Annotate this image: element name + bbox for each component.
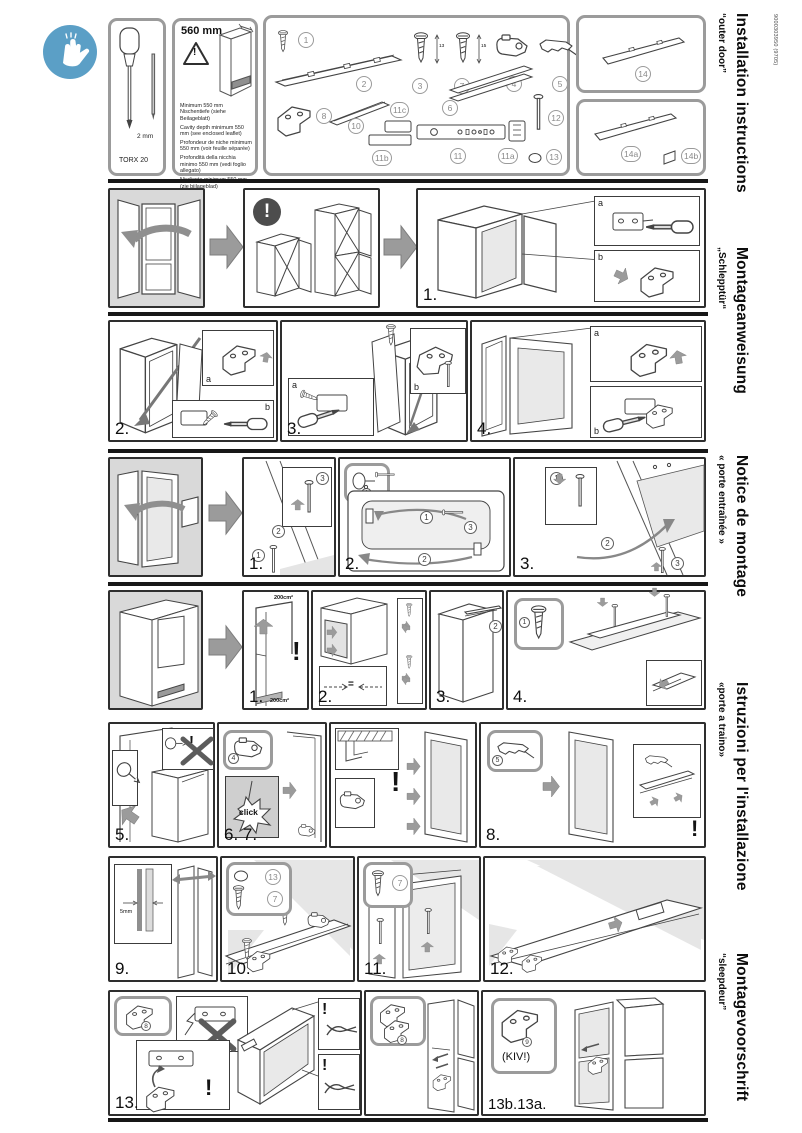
torx-screwdriver-icon — [115, 26, 161, 134]
installation-instruction-sheet: 2 mm TORX 20 560 mm ! Minimum 550 mm Nis… — [0, 0, 802, 1133]
part-14-panel: 14 — [576, 15, 706, 93]
hatch-art — [338, 731, 394, 765]
step-13b-13a-panel: 9 (KIV!) 13b.13a. — [481, 990, 706, 1116]
circled-8: 8 — [397, 1035, 407, 1045]
pliers-icon — [325, 1021, 359, 1043]
sidebar-section-it: Istruzioni per l'installazione «porte a … — [716, 682, 750, 932]
step-3-inset-b: b — [410, 328, 466, 394]
part-pin-12 — [534, 94, 546, 136]
cabinet-corner-art — [281, 728, 325, 846]
section-title-fr: Notice de montage — [732, 455, 750, 665]
step-1-panel: a b 1. — [416, 188, 706, 308]
hinge-icon — [338, 791, 372, 817]
inset-label-a: a — [594, 328, 599, 338]
under-door-art — [232, 1000, 318, 1110]
sidebar-section-de: Montageanweisung „Schlepptür“ — [716, 247, 750, 447]
bracket-turn-art — [141, 1045, 225, 1105]
part-callout-2: 2 — [356, 76, 372, 92]
step-number: 4. — [477, 419, 491, 439]
cap-screw-ref-inset: 13 7 — [226, 862, 292, 916]
cap-icon — [233, 869, 253, 883]
door-swap-art — [112, 463, 202, 575]
part-callout-14b: 14b — [681, 148, 701, 164]
step-4-inset-a: a — [590, 326, 702, 382]
hinge-inset — [335, 778, 375, 828]
part-callout-12: 12 — [548, 110, 564, 126]
door-swap-art — [112, 192, 204, 306]
door-swap-overview-panel — [108, 188, 205, 308]
pliers-inset-top: ! — [318, 998, 360, 1050]
gloves-icon — [40, 22, 100, 82]
slide-step-12-panel: 12. — [483, 856, 706, 982]
step-number: 9. — [115, 959, 129, 979]
gap-step-9-panel: 5mm 9. — [108, 856, 218, 982]
gap-label: 5mm — [120, 909, 132, 915]
warning-triangle-icon — [183, 41, 211, 67]
callout-13: 13 — [265, 869, 281, 885]
part-square-14b — [661, 150, 679, 166]
part-14a-14b-panel: 14a 14b — [576, 99, 706, 176]
part-callout-14a: 14a — [621, 146, 641, 162]
bracket-overview-panel: 8 — [364, 990, 479, 1116]
step-2-inset-a: a — [202, 330, 274, 386]
part-callout-6: 6 — [442, 100, 458, 116]
gap-inset: 5mm — [114, 864, 172, 944]
rail-fix-step-4-panel: 1 4. — [506, 590, 706, 710]
section-title-nl: Montagevoorschrift — [732, 953, 750, 1118]
circled-1: 1 — [420, 511, 433, 524]
doc-number: 9000303950 (9705) — [772, 14, 778, 65]
rail-clip-art — [638, 751, 696, 811]
part-11c-block — [384, 120, 414, 134]
gray-arrow-icon — [384, 226, 418, 269]
step-number: 13b.13a. — [488, 1096, 546, 1113]
step-4-inset-b: b — [590, 386, 702, 438]
part-cap-13 — [528, 152, 544, 164]
bracket-arrow-art — [609, 335, 697, 377]
divider — [108, 1118, 708, 1122]
step-number: 11. — [364, 959, 386, 979]
cabinet-panel-art — [317, 594, 397, 666]
double-door-fridge-art — [569, 996, 701, 1114]
step-number: 3. — [520, 554, 534, 574]
callout-7: 7 — [267, 891, 283, 907]
part-callout-3: 3 — [412, 78, 428, 94]
screws-step-10-panel: 13 7 10. — [220, 856, 355, 982]
step-number: 1. — [249, 687, 263, 707]
note-de: Minimum 550 mm Nischentiefe (siehe Beila… — [180, 103, 252, 122]
pliers-icon — [323, 1079, 357, 1103]
circled-9: 9 — [522, 1037, 532, 1047]
pliers-inset-bottom: ! — [318, 1054, 360, 1110]
dim-arrow — [434, 34, 442, 66]
section-title-it: Istruzioni per l'installazione — [732, 682, 750, 932]
niche-overview-panel — [108, 590, 203, 710]
part-callout-11b: 11b — [372, 150, 392, 166]
screw-icon — [531, 605, 549, 641]
plug-icon — [115, 763, 137, 793]
part-callout-13: 13 — [546, 149, 562, 165]
gray-arrow-icon — [209, 492, 243, 535]
pin-up-art — [651, 545, 673, 575]
fridge-open-art — [426, 194, 590, 304]
clip-step-8-panel: 5 ! 8. — [479, 722, 706, 848]
bracket-ref-inset: 8 — [114, 996, 172, 1036]
step-number: 3. — [436, 687, 450, 707]
part-callout-11c: 11c — [390, 102, 409, 118]
step-number: 1. — [249, 554, 263, 574]
bracket-art — [419, 335, 461, 387]
slide-in-step-5-panel: ! 5. — [108, 722, 215, 848]
part-rail-long — [274, 50, 406, 90]
part-bracket-8 — [276, 102, 314, 140]
door-mount-panel: ! — [329, 722, 477, 848]
door-gap-art — [172, 864, 216, 978]
part-screw-13 — [414, 32, 430, 66]
divider — [108, 582, 708, 586]
divider — [108, 312, 708, 316]
step-number: 2. — [318, 687, 332, 707]
click-step-6-7-panel: 4 click 6. 7. — [217, 722, 327, 848]
step-number: 6. 7. — [224, 825, 257, 845]
vent-step-1-panel: 200cm² 200cm² ! 1. — [242, 590, 309, 710]
step-number: 2. — [115, 419, 129, 439]
inset-label-b: b — [598, 252, 603, 262]
circled-8: 8 — [141, 1021, 151, 1031]
step-3-panel: a b 3. — [280, 320, 468, 442]
corner-art — [651, 665, 697, 701]
montage-step-3-panel: 1 2 3 3. — [513, 457, 706, 577]
corner-inset — [646, 660, 702, 706]
part-callout-11: 11 — [450, 148, 466, 164]
hinge-screw-art — [605, 205, 697, 243]
part-rails-6 — [448, 60, 540, 102]
door-arrow-art — [539, 728, 631, 846]
step-number: 8. — [486, 825, 500, 845]
circled-5: 5 — [492, 755, 503, 766]
circled-2: 2 — [418, 553, 431, 566]
note-it: Profondità della nicchia minimo 550 mm (… — [180, 155, 252, 174]
brackets-ref-inset: 8 — [370, 996, 426, 1046]
part-callout-14: 14 — [635, 66, 651, 82]
slider-art — [487, 860, 704, 980]
screws-step-11-panel: 7 11. — [357, 856, 481, 982]
sidebar-section-fr: Notice de montage « porte entraînée » — [716, 455, 750, 665]
equal-sign: = — [348, 679, 354, 690]
part-11a-cap — [508, 120, 528, 144]
plate-screwdriver-art — [293, 389, 371, 431]
bracket-screwdriver-art — [179, 405, 271, 435]
circled-3: 3 — [464, 521, 477, 534]
divider — [108, 179, 708, 183]
vent-bottom-label: 200cm² — [270, 698, 289, 704]
gap-art — [121, 869, 165, 931]
clip-ref-inset: 5 — [487, 730, 543, 772]
bracket-arrow-art — [611, 259, 697, 299]
gray-arrow-icon — [209, 626, 243, 669]
ceiling-inset — [335, 728, 399, 770]
kiv-label: (KIV!) — [502, 1051, 530, 1063]
section-subtitle-it: «porte a traino» — [716, 682, 727, 932]
parts-panel: 1 2 13 3 15 7 4 5 8 — [263, 15, 570, 176]
rail-clip-inset — [633, 744, 701, 818]
bracket-screwdriver-art — [599, 393, 697, 433]
screw-arrows-art — [400, 603, 420, 699]
screw-ref-inset: 7 — [363, 862, 413, 908]
niche-sketch — [215, 24, 255, 100]
divider — [108, 449, 708, 453]
open-door-art — [480, 330, 584, 436]
rail-step-3-panel: 2 3. — [429, 590, 504, 710]
part-hinge — [494, 34, 532, 62]
section-subtitle-nl: “sleepdeur” — [716, 953, 727, 1118]
step-number: 1. — [423, 285, 437, 305]
exclamation: ! — [322, 1001, 327, 1019]
exclamation: ! — [292, 636, 301, 667]
montage-step-2-panel: 1 1 3 2 2. — [338, 457, 511, 577]
door-swap-panel-2 — [108, 457, 203, 577]
part-callout-10: 10 — [348, 118, 364, 134]
circled-2: 2 — [601, 537, 614, 550]
torx-label: TORX 20 — [119, 157, 148, 164]
step-number: 2. — [345, 554, 359, 574]
part-callout-11a: 11a — [498, 148, 518, 164]
step-4-panel: a b 4. — [470, 320, 706, 442]
kiv-part-inset: 9 (KIV!) — [491, 998, 557, 1074]
warning-exclamation: ! — [193, 47, 196, 58]
part-clip — [538, 36, 580, 60]
screw-icon — [233, 885, 249, 913]
inset-label-a: a — [206, 374, 211, 384]
part-strip-14 — [599, 34, 691, 70]
screw-15-dim: 15 — [481, 44, 486, 49]
step-2-panel: a b 2. — [108, 320, 278, 442]
cabinet-types-art — [249, 194, 375, 302]
pin-icon — [270, 545, 284, 573]
circled-2: 2 — [272, 525, 285, 538]
bracket-turn-inset: ! — [136, 1040, 230, 1110]
exclamation: ! — [205, 1075, 212, 1101]
montage-step-1-panel: 3 2 1 1. — [242, 457, 336, 577]
door-art — [407, 728, 475, 846]
circled-2: 2 — [489, 620, 502, 633]
plug-inset — [112, 750, 138, 806]
exclamation: ! — [391, 766, 400, 798]
step-2-inset-b: b — [172, 400, 274, 438]
pin-down-art — [566, 472, 594, 518]
niche-art — [114, 596, 201, 708]
rail-mount-art — [568, 598, 702, 668]
step-1-inset-a: a — [594, 196, 700, 246]
note-en: Cavity depth minimum 550 mm (see enclose… — [180, 125, 252, 138]
bracket-art — [217, 339, 269, 379]
hinge-ref-inset: 4 — [223, 730, 273, 770]
exclamation: ! — [691, 816, 698, 842]
circled-1: 1 — [519, 617, 530, 628]
alignment-step-2-panel: = 2. — [311, 590, 427, 710]
section-subtitle-fr: « porte entraînée » — [716, 455, 727, 665]
section-title-de: Montageanweisung — [732, 247, 750, 447]
step-number: 12. — [490, 959, 514, 979]
bit-size-label: 2 mm — [137, 133, 153, 140]
vent-top-label: 200cm² — [274, 595, 293, 601]
step-number: 13. — [115, 1093, 139, 1113]
click-label: click — [239, 807, 258, 817]
screw-ref-inset: 1 — [514, 598, 564, 650]
exclamation: ! — [322, 1057, 327, 1075]
bracket-step-13-panel: 8 ! — [108, 990, 362, 1116]
section-subtitle-en: “outer door” — [716, 13, 727, 253]
section-subtitle-de: „Schlepptür“ — [716, 247, 727, 447]
tools-panel: 2 mm TORX 20 — [108, 18, 166, 176]
bracket-9-icon — [500, 1005, 552, 1041]
no-pinch-inset: ! — [162, 728, 214, 770]
pin-inset: 3 — [282, 467, 332, 527]
screw-icon — [372, 870, 388, 900]
warning-panel: ! — [243, 188, 380, 308]
screw-13-dim: 13 — [439, 44, 444, 49]
circled-4: 4 — [228, 753, 239, 764]
side-strip-inset — [397, 598, 423, 704]
two-door-fridge-art — [424, 996, 478, 1114]
step-number: 5. — [115, 825, 129, 845]
step-number: 3. — [287, 419, 301, 439]
part-strip-14a — [591, 110, 683, 146]
part-11b-block — [368, 134, 414, 147]
part-callout-1: 1 — [298, 32, 314, 48]
step-number: 10. — [227, 959, 251, 979]
niche-panel: 560 mm ! Minimum 550 mm Nischentiefe (si… — [172, 18, 258, 176]
gray-arrow-icon — [210, 226, 244, 269]
callout-7: 7 — [392, 875, 408, 891]
part-callout-5: 5 — [552, 76, 568, 92]
section-title-en: Installation instructions — [732, 13, 750, 253]
cross-out-icon — [181, 737, 213, 765]
inset-label-a: a — [598, 198, 603, 208]
pin-down-inset: 1 — [545, 467, 597, 525]
sidebar-section-nl: Montagevoorschrift “sleepdeur” — [716, 953, 750, 1118]
part-11-rail — [416, 124, 508, 141]
note-fr: Profondeur de niche minimum 550 mm (voir… — [180, 140, 252, 153]
step-number: 4. — [513, 687, 527, 707]
step-1-inset-b: b — [594, 250, 700, 302]
circled-3: 3 — [316, 472, 329, 485]
sidebar-section-en: Installation instructions “outer door” — [716, 13, 750, 253]
